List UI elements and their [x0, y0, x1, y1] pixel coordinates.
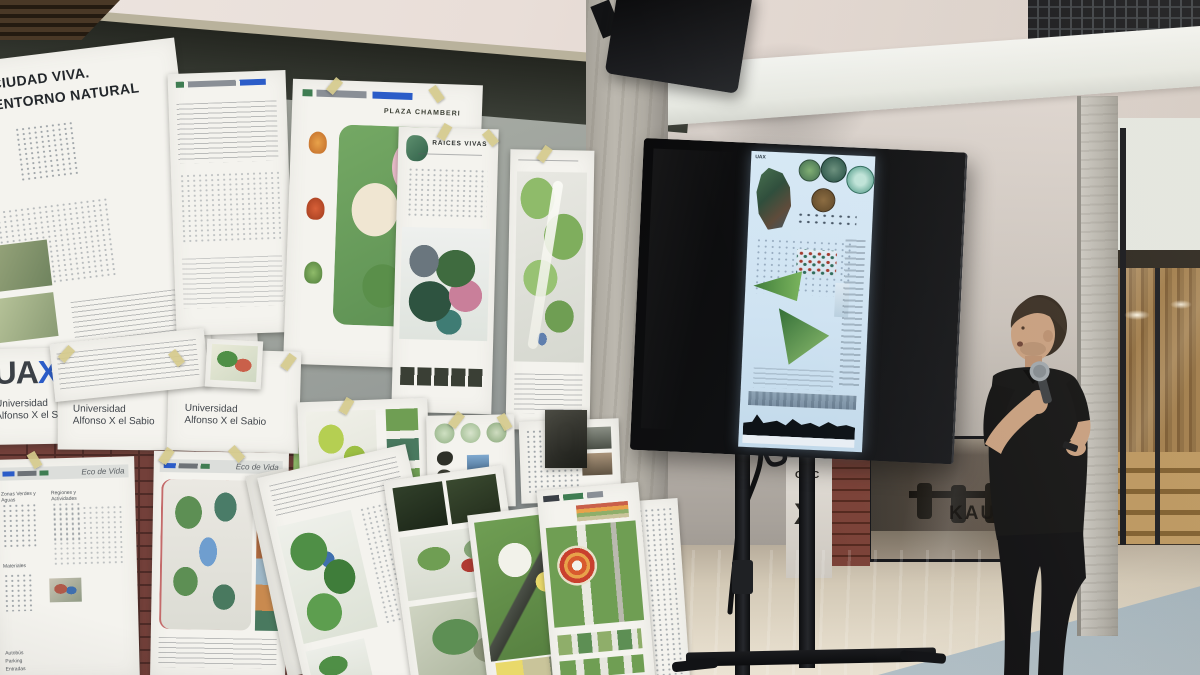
mini-renders [559, 654, 644, 675]
green-patch [305, 638, 372, 675]
tv-bezel-sheen [641, 148, 744, 432]
legend-bars [576, 501, 629, 521]
glass-mullion-left [1120, 128, 1126, 598]
render-thumb-green [0, 240, 52, 293]
sketch-field [179, 170, 281, 243]
icon-cluster [1, 503, 36, 548]
slide-figures [796, 211, 857, 230]
slide-annotation-column [753, 367, 834, 391]
poster-logo-row [302, 89, 412, 100]
section-lines [182, 255, 284, 308]
slide-uax-logo: UAX [755, 154, 766, 160]
poster-logo-row [176, 79, 266, 88]
uax-line1: Universidad [185, 403, 238, 415]
material-swatches [3, 573, 34, 612]
presenter-svg [935, 278, 1110, 675]
plaza-title: PLAZA CHAMBERI [384, 108, 461, 118]
section-strip [514, 373, 583, 414]
ceiling-light-glow [1124, 310, 1150, 320]
uax-line1: Universidad [0, 398, 48, 410]
poster-sections [167, 70, 294, 336]
tv: UAX [630, 138, 968, 464]
eco-title: Eco de Vida [81, 466, 124, 476]
poster-headline: CIUDAD VIVA. ENTORNO NATURAL [0, 52, 174, 116]
poster-dark-photo [545, 410, 587, 468]
subtitle-line [418, 153, 482, 156]
presenter-legs [997, 532, 1086, 675]
poster-greenplan [506, 149, 595, 430]
photo-stage: KAU ONC X CIUDAD VIVA. ENTORNO NATURAL U… [0, 0, 1200, 675]
mini-map-blob [406, 135, 429, 162]
uax-line2: Alfonso X el Sabio [73, 415, 155, 427]
header-logos [164, 463, 210, 469]
green-curvy-plan [277, 510, 378, 644]
slide-cluster [796, 249, 837, 277]
slide-map-blob [754, 167, 797, 231]
poster-leaning-target [536, 482, 655, 675]
uax-university: Universidad Alfonso X el Sabio [73, 404, 155, 428]
mini-illustration [210, 344, 258, 382]
tree-icon-orange [308, 131, 327, 154]
poster-eco-1: Eco de Vida Zonas Verdes y Aguas Regione… [0, 456, 140, 675]
slide-vignette-circle [811, 188, 836, 213]
illustration-collage [399, 227, 490, 341]
presenter-head [1011, 295, 1067, 361]
tv-stand-knuckle [732, 560, 753, 594]
plan-sketch [51, 505, 123, 567]
tv-stand-pole-left [735, 440, 750, 675]
uax-line2: Alfonso X el Sabio [184, 414, 266, 427]
label-materiales: Materiales [3, 563, 26, 570]
uax-university: Universidad Alfonso X el Sabio [184, 403, 266, 428]
uax-line1: Universidad [73, 404, 126, 415]
forest-photo [392, 481, 448, 532]
photo-strip [400, 367, 484, 387]
presenter [935, 278, 1110, 675]
header-line [518, 159, 578, 161]
label-zonas: Zonas Verdes y Aguas [1, 491, 45, 504]
uax-logo: UAX [0, 356, 58, 389]
tv-stand-pole-right [799, 442, 815, 668]
label-parking: Parking [5, 658, 22, 664]
section-strip [158, 637, 277, 669]
label-autobus: Autobús [5, 650, 24, 656]
icon-blob-dark [437, 451, 453, 465]
slide-vignette-circle [798, 159, 821, 182]
label-regiones: Regiones y Actividades [51, 489, 101, 502]
header-logos [543, 491, 603, 502]
uax-logo-ua: UA [0, 354, 38, 391]
poster-raices: RAICES VIVAS [391, 127, 498, 415]
label-entradas: Entradas [6, 666, 26, 673]
access-labels: Autobús Parking Entradas [5, 649, 26, 674]
mini-renders [557, 628, 642, 655]
presentation-slide: UAX [738, 151, 875, 452]
slide-vignette-circle [846, 165, 875, 194]
tree-icon-red [306, 197, 325, 220]
poster-color-mini [205, 339, 263, 390]
site-plan [159, 479, 254, 631]
section-lines [177, 100, 279, 163]
ceiling-light-glow-2 [1170, 300, 1192, 309]
tree-sketch [14, 120, 80, 182]
slide-city-photo [748, 391, 857, 410]
header-logos [2, 470, 48, 476]
diagram-circle [460, 423, 480, 443]
eco-header-bar: Eco de Vida [0, 464, 129, 480]
slide-triangle-2 [772, 308, 830, 366]
sketch-field [406, 167, 487, 219]
render-thumb-green [0, 292, 59, 343]
tree-icon-green [304, 261, 323, 284]
collage-thumb [49, 578, 82, 603]
raices-title: RAICES VIVAS [432, 140, 487, 148]
slide-vignette-circle [820, 156, 847, 183]
